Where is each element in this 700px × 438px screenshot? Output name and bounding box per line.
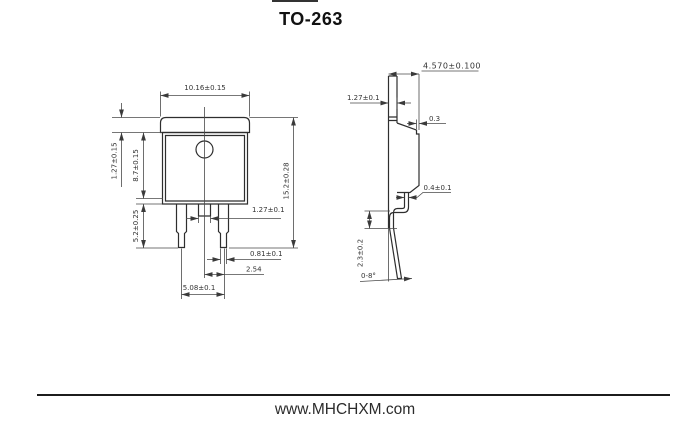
dim-lead-width-label: 0.81±0.1 [250, 250, 283, 258]
dim-center-tab-width-label: 1.27±0.1 [252, 206, 285, 214]
page: TO-263 10.16±0.15 [0, 0, 700, 438]
footer-divider [37, 394, 670, 396]
front-body-inner-line [166, 136, 245, 202]
dim-top-width-label: 10.16±0.15 [184, 84, 226, 92]
side-tab-step-lines [389, 117, 398, 121]
dim-lead-width: 0.81±0.1 [207, 249, 283, 265]
dim-tab-thickness-label: 1.27±0.1 [347, 94, 380, 102]
dim-center-tab-width: 1.27±0.1 [186, 206, 285, 223]
dim-overall-height-label: 15.2±0.28 [283, 162, 291, 199]
dim-body-height-label: 8.7±0.15 [132, 149, 140, 182]
footer-website-text: www.MHCHXM.com [0, 401, 690, 419]
dim-body-step-label: 0.3 [429, 115, 440, 123]
right-lead [219, 204, 229, 248]
side-lead-foot [390, 228, 402, 279]
dim-lead-thickness-label: 0.4±0.1 [424, 184, 452, 192]
side-view: 4.570±0.100 1.27±0.1 0.3 0.4± [347, 62, 481, 282]
front-view: 10.16±0.15 1.27±0.15 8.7±0.15 5.2±0.25 [111, 84, 299, 299]
left-lead [177, 204, 187, 248]
side-lead-bend-inner [394, 207, 405, 228]
dim-lead-pitch-label: 2.54 [246, 266, 262, 274]
dim-overall-height: 15.2±0.28 [229, 118, 298, 249]
dim-lead-angle: 0-8° [360, 272, 412, 282]
dim-top-width: 10.16±0.15 [161, 84, 250, 117]
package-outline-drawing: 10.16±0.15 1.27±0.15 8.7±0.15 5.2±0.25 [0, 0, 700, 438]
dim-tab-height-label: 1.27±0.15 [111, 142, 119, 179]
dim-overall-thickness-label: 4.570±0.100 [423, 62, 481, 71]
dim-body-step: 0.3 [407, 115, 446, 129]
side-lead-upper [405, 193, 409, 208]
dim-lead-span: 5.08±0.1 [182, 284, 225, 295]
front-package-outline [161, 107, 250, 278]
side-lead-bend-outer [390, 207, 409, 228]
dim-lead-angle-label: 0-8° [361, 272, 376, 280]
side-package-outline [389, 76, 420, 282]
front-tab-outline [161, 118, 250, 133]
dim-lead-length: 5.2±0.25 [132, 204, 178, 248]
side-tab-plate [389, 76, 398, 228]
dim-lead-span-label: 5.08±0.1 [183, 284, 216, 292]
front-body-outline [163, 133, 248, 205]
dim-tab-thickness: 1.27±0.1 [347, 94, 411, 109]
dim-standoff-height-label: 2.3±0.2 [357, 239, 365, 267]
dim-lead-length-label: 5.2±0.25 [132, 210, 140, 243]
dim-body-height: 8.7±0.15 [132, 133, 163, 199]
side-body-outline [397, 123, 419, 193]
